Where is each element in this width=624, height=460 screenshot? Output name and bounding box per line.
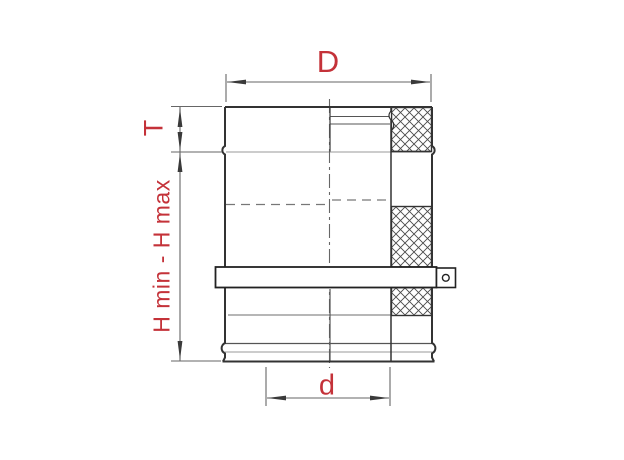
arrow-down-icon xyxy=(178,132,183,151)
pipe-section-drawing xyxy=(0,0,624,460)
locking-band xyxy=(216,267,456,288)
dimension-label-d: d xyxy=(319,370,335,403)
arrow-left-icon xyxy=(227,80,246,85)
dimension-label-T: T xyxy=(139,120,170,137)
dimension-label-D: D xyxy=(317,44,339,80)
arrow-down-icon xyxy=(178,341,183,360)
insulation-hatch-lower xyxy=(392,288,432,316)
center-axis-line xyxy=(330,99,331,368)
arrow-left-icon xyxy=(267,396,286,401)
arrow-up-icon xyxy=(178,108,183,127)
telescopic-overlap-dashed-line xyxy=(226,200,390,205)
dimension-H xyxy=(171,152,221,361)
technical-drawing-canvas: D T H min - H max d xyxy=(0,0,624,460)
insulation-hatch-middle xyxy=(392,207,432,268)
arrow-right-icon xyxy=(370,396,389,401)
insulation-hatch-top xyxy=(389,108,432,152)
dimension-T xyxy=(171,107,222,153)
bottom-rim-bead-lines xyxy=(223,344,434,353)
arrow-right-icon xyxy=(411,80,430,85)
inner-liner-seam-lines xyxy=(330,117,390,125)
locking-band-rivet xyxy=(442,274,449,281)
dimension-label-H-min-max: H min - H max xyxy=(149,179,176,332)
arrow-up-icon xyxy=(178,153,183,172)
